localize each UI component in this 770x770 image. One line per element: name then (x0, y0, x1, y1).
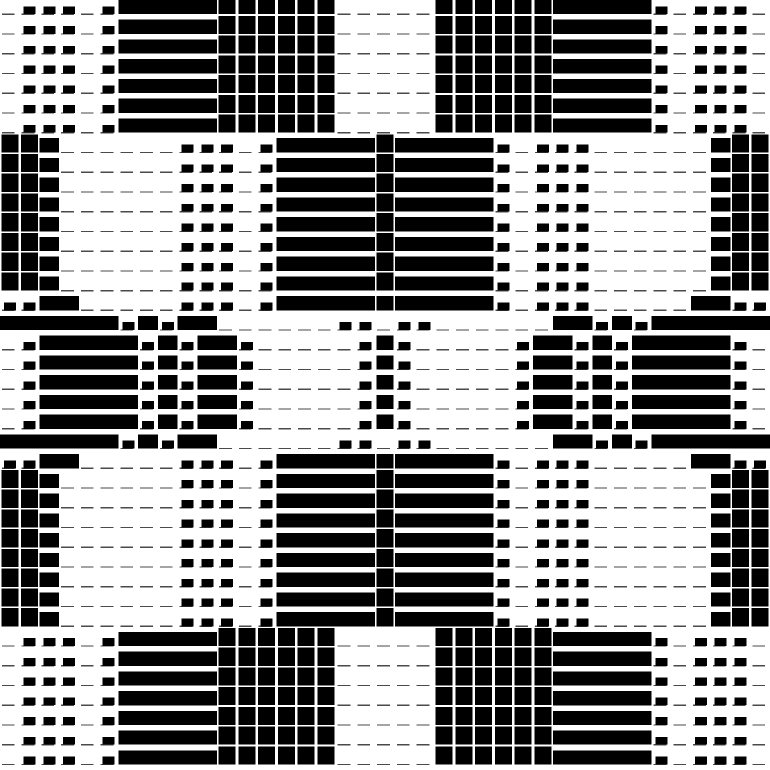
op-art-pattern (0, 0, 770, 770)
pattern-canvas (0, 0, 770, 770)
